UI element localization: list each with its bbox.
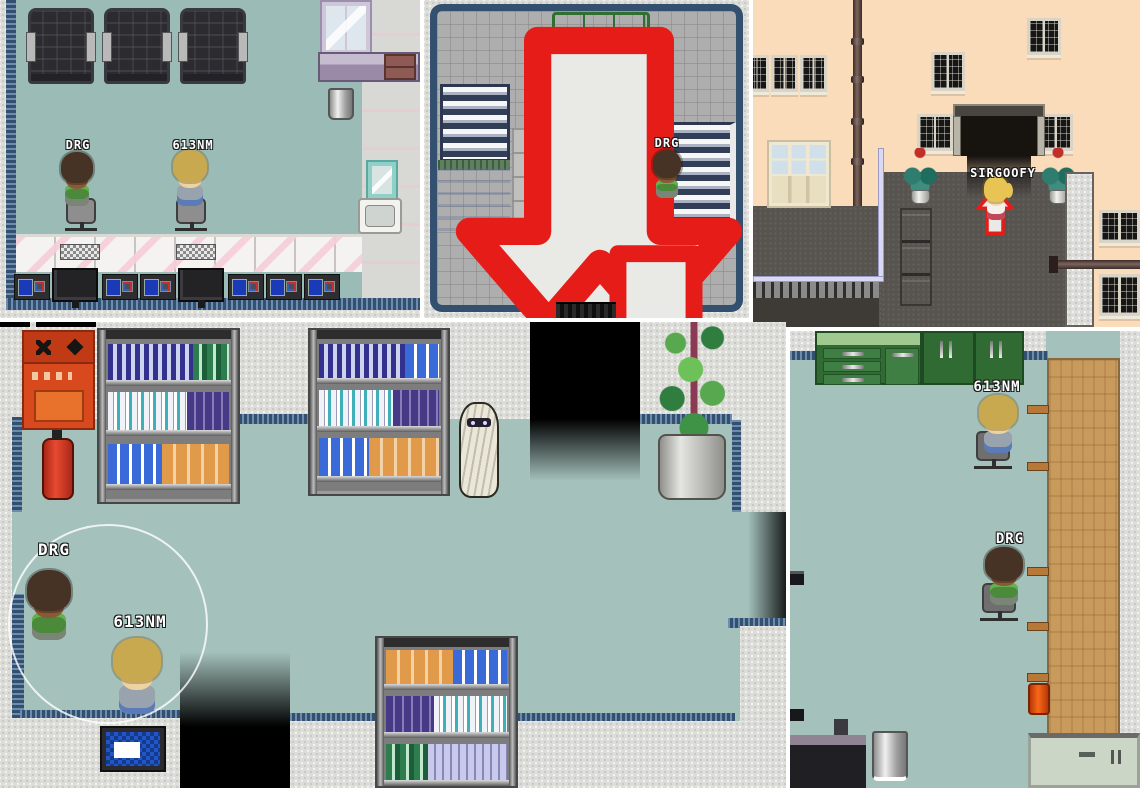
sink-basin (365, 205, 395, 227)
drain-pipe (853, 0, 862, 212)
vending-machine[interactable] (22, 330, 95, 430)
salon-wall-border-left (6, 0, 16, 310)
window (931, 52, 965, 91)
large-plant-pot (658, 434, 726, 500)
panel-salon: DRG 613NM (0, 0, 420, 318)
wall-border-left (12, 417, 22, 512)
wall-base-border (1022, 351, 1048, 360)
recliner-chair (180, 8, 246, 84)
bottom-wall-right (290, 721, 786, 788)
x-symbol-icon (36, 340, 51, 355)
roof-railing (753, 282, 879, 298)
stacked-crates (900, 208, 932, 306)
panel-shop: DRG 613NM (0, 322, 786, 788)
control-console (228, 274, 264, 300)
kitchen-appliance (1028, 733, 1140, 788)
control-console (304, 274, 340, 300)
dark-counter (790, 745, 866, 788)
sink (358, 198, 402, 234)
computer-monitor (178, 268, 224, 302)
pipe-joint (851, 118, 864, 125)
player-character-drg[interactable] (60, 152, 94, 206)
cabinet-glass (326, 6, 366, 50)
screenshot-collage: DRG 613NM DRG (0, 0, 1140, 788)
fire-extinguisher (42, 438, 74, 500)
roof-edge-pipe (878, 148, 884, 280)
trash-can (328, 88, 354, 120)
dark-doorway[interactable] (530, 322, 640, 419)
player-name-label: DRG (655, 136, 680, 150)
trash-can (872, 731, 908, 781)
control-console (14, 274, 50, 300)
glass-cabinet (320, 0, 372, 56)
mirror (366, 160, 398, 200)
computer-monitor (52, 268, 98, 302)
appliance-handle (1111, 750, 1114, 764)
player-character-drg[interactable] (984, 547, 1024, 605)
horizontal-pipe (1053, 260, 1140, 269)
store-shelf (308, 328, 450, 496)
table-peg (1027, 405, 1049, 414)
stone-column (1065, 172, 1094, 327)
keyboard (60, 244, 100, 260)
top-edge-bar (0, 322, 30, 327)
info-kiosk[interactable] (100, 726, 166, 772)
player-name-label: 613NM (113, 612, 166, 631)
right-wall-strip (1120, 331, 1140, 788)
green-counter-cabinet (815, 331, 922, 385)
control-console (266, 274, 302, 300)
appliance-vent (1079, 752, 1095, 757)
recliner-chair (28, 8, 94, 84)
player-character-drg[interactable] (26, 570, 72, 640)
player-name-label: 613NM (172, 138, 213, 152)
player-character-sirgoofy[interactable] (983, 176, 1009, 220)
recliner-chair (104, 8, 170, 84)
player-name-label: DRG (66, 138, 91, 152)
tan-double-door[interactable] (767, 140, 831, 208)
window (771, 55, 798, 92)
wall-fixture (790, 709, 804, 721)
dark-counter-top (790, 735, 866, 745)
store-shelf (375, 636, 518, 788)
window (800, 55, 827, 92)
store-shelf (97, 328, 240, 504)
player-character-drg[interactable] (652, 150, 682, 198)
drawer-unit (384, 54, 416, 80)
entrance-opening[interactable] (961, 116, 1037, 156)
panel-street: SIRGOOFY (753, 0, 1140, 327)
player-name-label: DRG (38, 540, 70, 559)
entrance-post (953, 116, 961, 156)
window (917, 114, 953, 151)
kiosk-screen (106, 732, 160, 766)
player-character-613nm[interactable] (978, 395, 1018, 453)
pipe-joint (851, 76, 864, 83)
wall-fixture (790, 571, 804, 585)
right-exit-shadow[interactable] (748, 512, 786, 624)
panel-office: 613NM DRG (790, 331, 1140, 788)
table-peg (1027, 673, 1049, 682)
wooden-table (1047, 358, 1120, 788)
pipe-joint (851, 38, 864, 45)
control-console (102, 274, 138, 300)
player-name-label: SIRGOOFY (970, 166, 1036, 180)
pipe-end-cap (1049, 256, 1058, 273)
table-peg (1027, 462, 1049, 471)
top-edge-bar (36, 322, 96, 327)
table-peg (1027, 567, 1049, 576)
wall-base-border (237, 414, 310, 424)
mummy-npc[interactable] (455, 402, 503, 498)
keyboard (176, 244, 216, 260)
table-peg (1027, 622, 1049, 631)
window (1027, 18, 1061, 55)
flower-planter (901, 148, 939, 204)
mirror-glass (372, 166, 392, 194)
orange-canister (1028, 683, 1050, 715)
doorway-shadow (530, 419, 640, 481)
window (1099, 274, 1140, 316)
exit-doorway-bottom[interactable] (556, 302, 616, 318)
appliance-handle (1118, 750, 1121, 764)
window (753, 55, 769, 92)
window (1099, 210, 1140, 243)
player-name-label: 613NM (973, 379, 1020, 395)
player-character-613nm[interactable] (112, 638, 162, 714)
green-tall-cabinets (922, 331, 1024, 385)
player-character-613nm[interactable] (172, 150, 208, 206)
exit-doorway-bottom[interactable] (180, 652, 290, 788)
panel-lobby: DRG (424, 0, 749, 318)
pipe-joint (851, 158, 864, 165)
player-name-label: DRG (996, 531, 1024, 547)
control-console (140, 274, 176, 300)
